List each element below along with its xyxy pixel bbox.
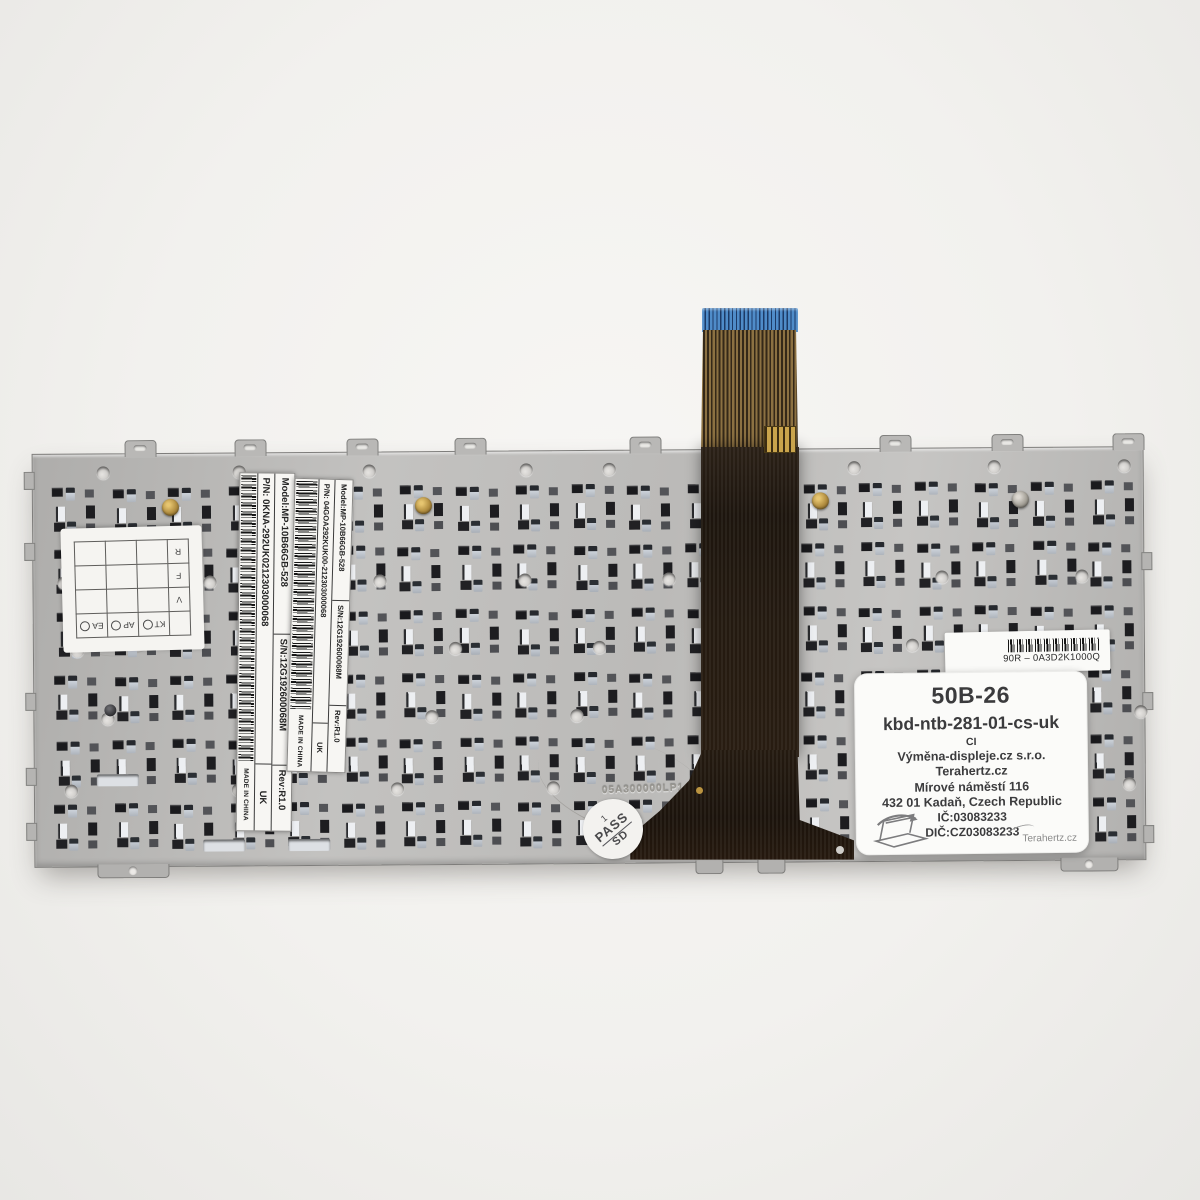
mount-hole [951, 561, 960, 574]
mount-hole [948, 499, 957, 512]
mount-hole [989, 605, 998, 618]
mount-hole [1095, 753, 1104, 768]
mount-hole [130, 711, 139, 723]
key-mount-unit [459, 738, 505, 784]
mount-hole [431, 583, 440, 591]
mount-hole [431, 565, 440, 578]
mount-hole [550, 772, 559, 780]
mount-hole [632, 737, 643, 746]
mount-hole [689, 562, 698, 577]
mount-hole [460, 738, 471, 747]
mount-hole [376, 710, 385, 718]
mount-hole [1103, 576, 1112, 588]
mount-hole [404, 758, 413, 773]
mount-hole [376, 692, 385, 705]
mount-hole [817, 606, 826, 619]
mount-hole [472, 801, 481, 814]
silver-screw [1012, 491, 1029, 508]
mount-hole [633, 564, 642, 579]
key-mount-unit [457, 546, 503, 592]
mount-hole [893, 644, 902, 652]
tab-hole [1084, 859, 1093, 868]
mount-hole [433, 487, 442, 495]
mount-hole [627, 486, 638, 495]
mount-hole [1046, 516, 1055, 528]
mount-hole [117, 838, 128, 847]
mount-hole [149, 839, 158, 847]
mount-hole [1121, 670, 1130, 678]
mount-hole [839, 800, 848, 808]
mount-hole [807, 625, 816, 640]
label-model: Model:MP-10B66GB-528 [332, 480, 352, 601]
mount-hole [573, 644, 584, 653]
mount-hole [415, 519, 424, 531]
mount-hole [145, 742, 154, 750]
mount-hole [1105, 605, 1114, 618]
mount-hole [607, 674, 616, 682]
mount-hole [1090, 577, 1101, 586]
mount-hole [130, 837, 139, 849]
mount-hole [1092, 561, 1101, 576]
mount-hole [1124, 607, 1133, 615]
mount-hole [1006, 578, 1015, 586]
barcode [1008, 637, 1100, 652]
mount-hole [585, 738, 594, 751]
mount-hole [805, 770, 816, 779]
tab-slot [356, 444, 369, 450]
mount-hole [518, 520, 529, 529]
mount-hole [112, 740, 123, 749]
mount-hole [492, 711, 501, 719]
mount-hole [88, 711, 97, 719]
mount-hole [464, 757, 473, 772]
mount-hole [376, 839, 385, 847]
mount-hole [1102, 542, 1111, 555]
key-mount-unit [454, 487, 500, 533]
mount-hole [950, 545, 959, 553]
mount-hole [119, 696, 128, 711]
mount-hole [644, 708, 653, 720]
key-mount-unit [53, 675, 99, 721]
mount-hole [975, 605, 986, 614]
mount-hole [646, 608, 655, 621]
mount-hole [1090, 703, 1101, 712]
mount-hole [803, 606, 814, 615]
key-mount-unit [1087, 668, 1133, 714]
mount-hole [1088, 542, 1099, 551]
mount-hole [921, 642, 932, 651]
mount-hole [475, 772, 484, 784]
mount-hole [1122, 560, 1131, 573]
mount-hole [182, 488, 191, 501]
mount-hole [805, 691, 814, 706]
mount-hole [228, 486, 239, 495]
key-mount-unit [1087, 542, 1133, 588]
mount-hole [550, 754, 559, 767]
mount-hole [492, 564, 501, 577]
mount-hole [990, 517, 999, 529]
mount-hole [492, 582, 501, 590]
mount-hole [145, 491, 154, 499]
mount-hole [434, 503, 443, 516]
mount-hole [1063, 609, 1072, 617]
mount-hole [401, 566, 410, 581]
keyboard-product-photo: 05A300000LP1 01 1 PASS SD KT AP EA V [0, 0, 1200, 1200]
key-mount-unit [56, 741, 102, 787]
mount-hole [455, 487, 466, 496]
mount-hole [641, 486, 650, 499]
mount-hole [56, 507, 65, 522]
mount-hole [1048, 575, 1057, 587]
key-mount-unit [800, 672, 846, 718]
mount-hole [892, 610, 901, 618]
mount-hole [1106, 768, 1115, 780]
mount-hole [185, 710, 194, 722]
mount-hole [530, 736, 539, 749]
mount-hole [473, 580, 482, 592]
mount-hole [68, 805, 77, 818]
mount-hole [1008, 607, 1017, 615]
mount-hole [576, 581, 587, 590]
mounting-tab-bottom [97, 864, 169, 879]
mount-hole [458, 675, 469, 684]
mount-hole [875, 542, 884, 555]
mount-hole [633, 693, 642, 708]
mount-hole [188, 773, 197, 785]
mount-hole [520, 755, 529, 770]
mount-hole [353, 487, 362, 500]
mount-hole [914, 482, 925, 491]
mount-hole [892, 485, 901, 493]
mount-hole [837, 624, 846, 637]
mount-hole [605, 645, 614, 653]
mount-hole [265, 839, 274, 847]
mounting-tab-left [24, 543, 35, 561]
mount-hole [647, 642, 656, 654]
mount-hole [919, 607, 930, 616]
mount-hole [377, 739, 386, 747]
mount-hole [469, 487, 478, 500]
mount-hole [1030, 607, 1041, 616]
key-mount-unit [570, 484, 616, 530]
mount-hole [146, 507, 155, 520]
mount-hole [605, 627, 614, 640]
mount-hole [928, 482, 937, 495]
mount-hole [575, 628, 584, 643]
mount-hole [522, 821, 531, 836]
mounting-tab-top [879, 435, 911, 452]
alignment-hole [203, 576, 216, 589]
tab-hole [128, 866, 137, 875]
label-made-in: MADE IN CHINA [287, 711, 312, 772]
mount-hole [488, 489, 497, 497]
mount-hole [547, 580, 556, 588]
mount-hole [803, 707, 814, 716]
mount-hole [607, 548, 616, 556]
mount-hole [644, 579, 653, 591]
mount-hole [661, 503, 670, 516]
mount-hole [550, 521, 559, 529]
mount-hole [835, 708, 844, 716]
mount-hole [818, 769, 827, 781]
mount-hole [85, 489, 94, 497]
key-mount-unit [626, 485, 672, 531]
ribbon-cable-dark-section [701, 447, 799, 757]
mount-hole [207, 775, 216, 783]
mount-hole [1033, 541, 1044, 550]
mount-hole [931, 544, 940, 557]
alignment-hole [988, 460, 1001, 473]
mount-hole [666, 625, 675, 638]
mount-hole [436, 820, 445, 833]
mount-hole [836, 737, 845, 745]
mount-hole [874, 642, 883, 654]
mount-hole [399, 582, 410, 591]
mount-hole [631, 505, 640, 520]
label-made-in: MADE IN CHINA [237, 764, 255, 830]
mount-hole [604, 486, 613, 494]
mount-hole [531, 519, 540, 531]
mount-hole [402, 520, 413, 529]
mount-hole [172, 840, 183, 849]
mount-hole [357, 580, 366, 592]
mount-hole [918, 501, 927, 516]
mount-hole [1044, 482, 1053, 495]
mount-hole [490, 523, 499, 531]
mount-hole [687, 578, 698, 587]
mount-hole [1125, 641, 1134, 649]
gold-screw [415, 497, 432, 514]
mount-hole [173, 739, 184, 748]
mount-hole [690, 672, 701, 681]
mount-hole [174, 824, 183, 839]
mount-hole [837, 753, 846, 766]
mount-hole [629, 545, 640, 554]
mount-hole [974, 577, 985, 586]
mount-hole [1047, 541, 1056, 554]
mount-hole [893, 519, 902, 527]
mount-hole [406, 692, 415, 707]
mount-hole [666, 754, 675, 767]
mount-hole [527, 673, 536, 686]
key-mount-unit [341, 803, 387, 849]
mount-hole [344, 839, 355, 848]
mount-hole [1034, 501, 1043, 516]
mount-hole [492, 693, 501, 706]
key-mount-unit [628, 673, 674, 719]
mount-hole [949, 517, 958, 525]
mount-hole [185, 839, 194, 851]
mount-hole [348, 757, 357, 772]
mount-hole [207, 757, 216, 770]
mount-hole [549, 487, 558, 495]
mount-hole [662, 546, 671, 554]
alignment-hole [935, 570, 948, 583]
mount-hole [56, 711, 67, 720]
mount-hole [933, 607, 942, 620]
tab-slot [1000, 439, 1013, 445]
mount-hole [588, 672, 597, 685]
mount-hole [1124, 482, 1133, 490]
mount-hole [1035, 576, 1046, 585]
mounting-tab-top [346, 438, 378, 455]
mount-hole [88, 822, 97, 835]
mount-hole [518, 645, 529, 654]
mount-hole [493, 740, 502, 748]
mount-hole [550, 503, 559, 516]
mount-hole [550, 628, 559, 641]
mount-hole [865, 561, 874, 576]
seller-code: 50B-26 [854, 680, 1087, 711]
mount-hole [518, 771, 529, 780]
mount-hole [1091, 480, 1102, 489]
key-mount-unit [573, 546, 619, 592]
seller-signature: Terahertz.cz [1022, 833, 1077, 846]
mount-hole [604, 611, 613, 619]
mount-hole [666, 643, 675, 651]
mount-hole [605, 756, 614, 769]
mount-hole [893, 501, 902, 514]
mount-hole [632, 608, 643, 617]
alignment-hole [518, 573, 531, 586]
alignment-hole [65, 785, 78, 798]
key-mount-unit [858, 483, 904, 529]
mount-hole [894, 544, 903, 552]
mount-hole [416, 802, 425, 815]
mount-hole [434, 521, 443, 529]
tab-slot [134, 445, 147, 451]
mount-hole [1122, 704, 1131, 712]
alignment-hole [1123, 777, 1136, 790]
key-mount-unit [1090, 480, 1136, 526]
mount-hole [575, 757, 584, 772]
label-rev: Rev:R1.0 [272, 766, 292, 831]
key-mount-unit [858, 608, 904, 654]
mount-hole [806, 519, 817, 528]
mount-hole [146, 776, 155, 784]
key-mount-unit [802, 606, 848, 652]
mount-hole [126, 740, 135, 753]
mount-hole [863, 627, 872, 642]
key-mount-unit [401, 802, 447, 848]
mount-hole [663, 691, 672, 704]
mount-hole [919, 579, 930, 588]
alignment-hole [547, 781, 560, 794]
mount-hole [359, 772, 368, 784]
mount-hole [375, 805, 384, 813]
alignment-hole [363, 464, 376, 477]
mount-hole [146, 758, 155, 771]
mount-hole [471, 521, 480, 533]
mount-hole [893, 626, 902, 639]
cable-conductor-stripes [701, 447, 799, 757]
key-mount-unit [512, 673, 558, 719]
mount-hole [840, 816, 849, 829]
alignment-hole [425, 710, 438, 723]
mount-hole [972, 542, 983, 551]
asus-barcode-label: 90R – 0A3D2K1000Q [945, 629, 1111, 673]
mount-hole [473, 835, 482, 847]
mount-hole [837, 771, 846, 779]
mount-hole [400, 739, 411, 748]
mount-hole [172, 711, 183, 720]
mount-hole [687, 609, 698, 618]
mount-hole [400, 485, 411, 494]
mount-hole [578, 565, 587, 580]
mounting-tab-top [1112, 433, 1144, 450]
mount-hole [69, 839, 78, 851]
mount-hole [358, 738, 367, 751]
mount-hole [578, 691, 587, 706]
mount-hole [404, 504, 413, 519]
mount-hole [168, 488, 179, 497]
mount-hole [488, 611, 497, 619]
mount-hole [859, 483, 870, 492]
mounting-tab-right [1141, 552, 1152, 570]
mount-hole [491, 803, 500, 811]
mount-hole [54, 676, 65, 685]
mount-hole [687, 484, 698, 493]
mount-hole [436, 838, 445, 846]
mount-hole [873, 483, 882, 496]
laptop-replace-icon [864, 809, 931, 852]
key-mount-unit [913, 481, 959, 527]
mount-hole [873, 608, 882, 621]
mount-hole [636, 756, 645, 771]
mount-hole [318, 775, 327, 783]
mount-hole [531, 770, 540, 782]
mount-hole [801, 672, 812, 681]
mount-hole [571, 609, 582, 618]
mount-hole [1066, 543, 1075, 551]
mount-hole [417, 836, 426, 848]
mount-hole [689, 644, 700, 653]
alignment-hole [848, 461, 861, 474]
key-mount-unit [396, 547, 442, 593]
mount-hole [917, 517, 928, 526]
mount-hole [520, 504, 529, 519]
mount-hole [815, 543, 824, 556]
mount-hole [116, 508, 125, 523]
mount-hole [634, 772, 645, 781]
mount-hole [691, 503, 700, 518]
mounting-tab-left [25, 693, 36, 711]
mount-hole [1091, 605, 1102, 614]
mount-hole [517, 692, 526, 707]
mount-hole [460, 836, 471, 845]
mount-hole [1044, 607, 1053, 620]
mount-hole [588, 546, 597, 559]
mount-hole [469, 609, 478, 622]
mount-hole [975, 483, 986, 492]
alignment-hole [373, 574, 386, 587]
mount-hole [474, 738, 483, 751]
mount-hole [1108, 831, 1117, 843]
mount-hole [357, 838, 366, 850]
mount-hole [170, 805, 181, 814]
mount-hole [1093, 797, 1104, 806]
mount-hole [491, 677, 500, 685]
alignment-hole [97, 466, 110, 479]
mount-hole [586, 772, 595, 784]
mount-hole [462, 820, 471, 835]
mount-hole [119, 822, 128, 837]
mount-hole [1033, 517, 1044, 526]
mount-hole [202, 506, 211, 519]
mount-hole [835, 561, 844, 574]
label-country: UK [255, 764, 272, 830]
key-mount-unit [457, 675, 503, 721]
